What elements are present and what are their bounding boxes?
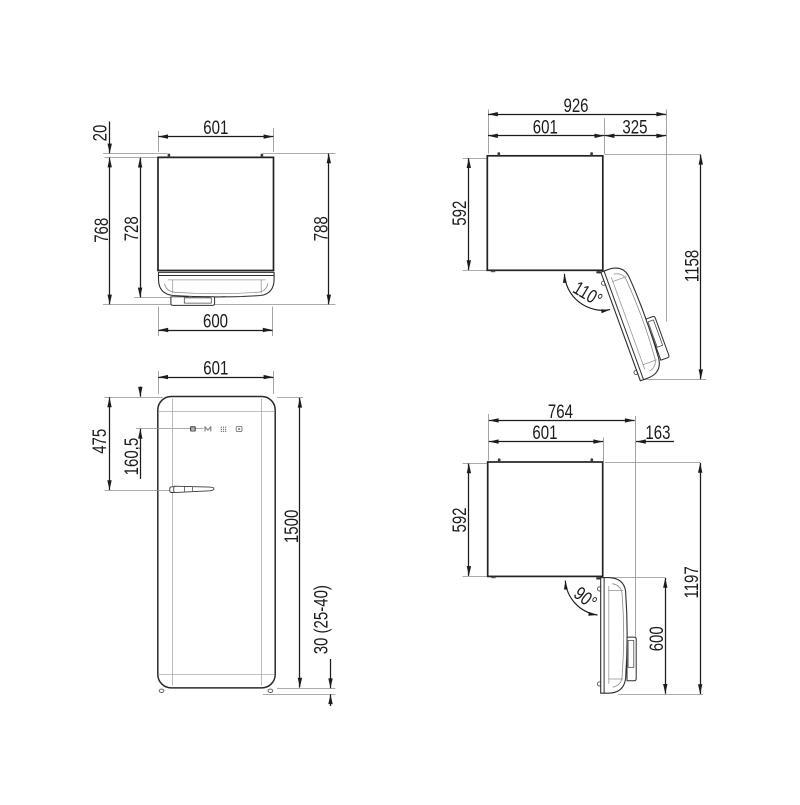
svg-text:788: 788 xyxy=(311,216,332,241)
svg-text:1197: 1197 xyxy=(681,566,702,598)
svg-text:728: 728 xyxy=(121,216,142,241)
svg-text:764: 764 xyxy=(548,401,573,422)
svg-text:1500: 1500 xyxy=(281,510,302,543)
svg-text:601: 601 xyxy=(203,358,228,379)
svg-text:30 (25-40): 30 (25-40) xyxy=(311,585,332,654)
svg-text:160,5: 160,5 xyxy=(122,438,143,476)
svg-text:601: 601 xyxy=(532,423,557,444)
svg-text:601: 601 xyxy=(533,117,558,138)
svg-text:475: 475 xyxy=(90,429,111,454)
svg-text:163: 163 xyxy=(645,423,670,444)
svg-text:592: 592 xyxy=(449,507,470,532)
svg-text:592: 592 xyxy=(449,201,470,226)
svg-text:20: 20 xyxy=(90,125,111,142)
svg-text:768: 768 xyxy=(91,218,112,243)
svg-text:600: 600 xyxy=(647,626,668,651)
svg-text:926: 926 xyxy=(563,95,588,116)
svg-text:1158: 1158 xyxy=(682,250,703,282)
svg-text:600: 600 xyxy=(203,311,228,332)
svg-text:325: 325 xyxy=(622,117,647,138)
svg-text:601: 601 xyxy=(203,118,228,139)
